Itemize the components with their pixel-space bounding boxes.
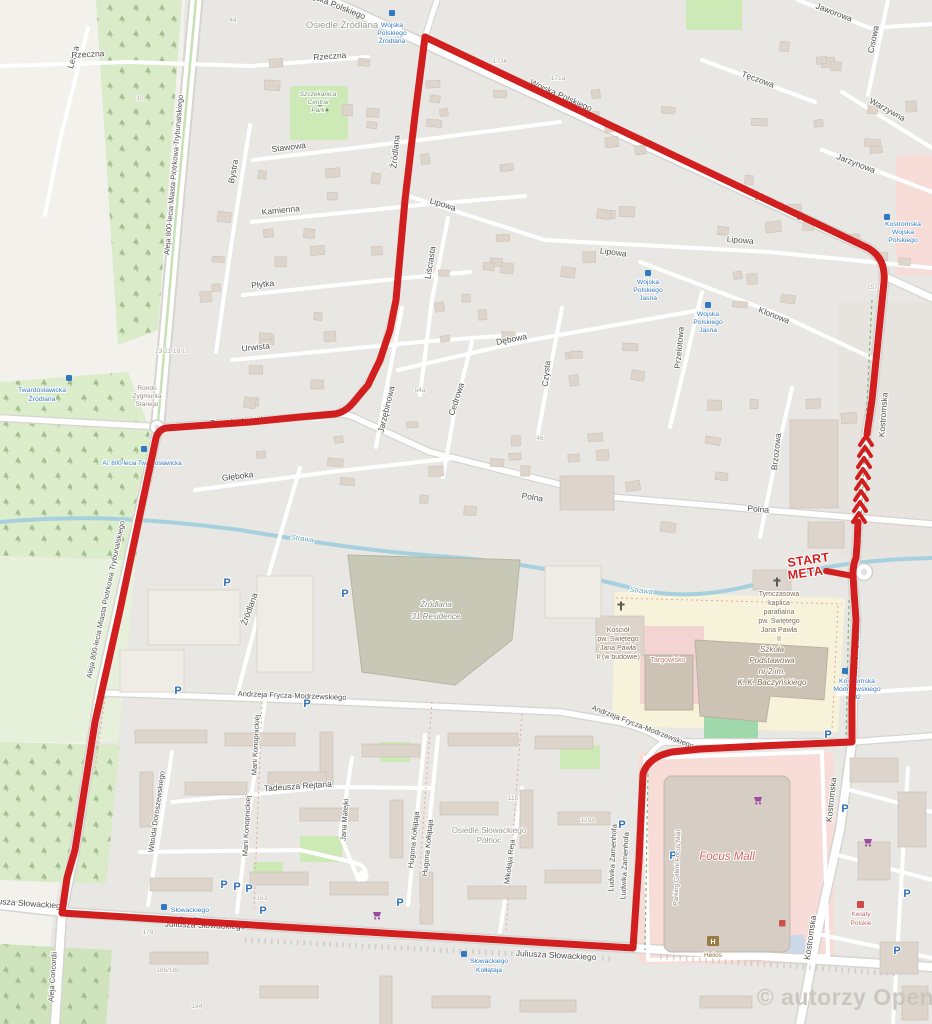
osm-map: H PP PP PP PP PP PP PP P Letnia Aleja 80… [0, 0, 932, 1024]
svg-text:Jasna: Jasna [699, 327, 717, 334]
svg-text:II: II [777, 636, 781, 643]
svg-text:Starego: Starego [136, 401, 159, 408]
church-label: Kościół [607, 627, 630, 634]
house-number: 179 [143, 929, 154, 936]
svg-text:pw. Świętego: pw. Świętego [597, 634, 638, 643]
house-number: 10 [136, 95, 144, 102]
house-number: 23 21 19 17 [155, 348, 190, 355]
svg-text:II (w budowie): II (w budowie) [596, 654, 640, 661]
stop-wp-zrodlana: Wojska [381, 22, 403, 29]
house-number: 1736 [493, 58, 508, 65]
stop-twardoslawicka-zrodlana: Twardosławicka [18, 387, 66, 394]
residence-label: Źródlana [419, 600, 452, 609]
svg-text:K. K. Baczyńskiego: K. K. Baczyńskiego [738, 678, 807, 687]
park-label: Szczekanica [300, 91, 337, 98]
shop-icon [779, 920, 786, 927]
svg-text:pw. Świętego: pw. Świętego [758, 616, 799, 625]
house-number: 115 [508, 795, 519, 802]
bus-stop-icon [842, 668, 848, 674]
house-number: 44 [229, 17, 237, 24]
svg-text:Modrzewskiego: Modrzewskiego [833, 686, 880, 693]
svg-text:Polskiego: Polskiego [888, 237, 918, 244]
area-label-osiedle-slowackiego: Osiedle Słowackiego [452, 826, 527, 835]
svg-text:Źródlana: Źródlana [379, 36, 406, 45]
svg-text:P: P [396, 897, 403, 909]
bus-stop-icon [389, 10, 395, 16]
svg-text:Jana Pawła: Jana Pawła [600, 645, 636, 652]
attribution: © autorzy OpenStreetMap.org [757, 984, 932, 1010]
svg-text:Polskiego: Polskiego [377, 30, 407, 37]
svg-text:Polskiego: Polskiego [633, 287, 663, 294]
svg-text:Zygmunta: Zygmunta [133, 393, 162, 400]
focus-mall-building [664, 776, 790, 952]
svg-text:P: P [903, 888, 910, 900]
svg-text:P: P [259, 905, 266, 917]
svg-text:P: P [220, 879, 227, 891]
svg-text:parafialna: parafialna [764, 609, 795, 616]
stop-wp-jasna: Wojska [697, 311, 719, 318]
svg-text:Północ: Północ [477, 836, 501, 845]
bus-stop-icon [141, 446, 147, 452]
stop-slowackiego-kollataja: Słowackiego [470, 958, 508, 965]
svg-text:P: P [618, 819, 625, 831]
svg-text:P: P [233, 881, 240, 893]
house-number: 54a [415, 387, 426, 394]
house-number: 184 [192, 1003, 203, 1010]
svg-text:Central: Central [308, 99, 330, 106]
svg-text:kaplica: kaplica [768, 600, 790, 607]
svg-text:Wojska: Wojska [892, 229, 914, 236]
svg-text:Park: Park [311, 107, 325, 114]
house-number: 129A [580, 817, 596, 824]
svg-text:P: P [174, 685, 181, 697]
house-number: 163 [257, 895, 268, 902]
svg-text:Jasna: Jasna [639, 295, 657, 302]
svg-text:H: H [710, 939, 715, 946]
florist-icon [857, 901, 864, 908]
svg-text:P: P [893, 945, 900, 957]
svg-text:Polskie: Polskie [851, 920, 872, 927]
street-label-lipowa: Lipowa [726, 234, 754, 246]
street-label-rzeczna: Rzeczna [71, 48, 105, 60]
svg-text:nr 2 im.: nr 2 im. [759, 667, 786, 676]
house-number: 46 [536, 435, 544, 442]
school-label: Szkoła [760, 645, 785, 654]
svg-text:P: P [841, 803, 848, 815]
playground-icon [326, 109, 329, 112]
bus-stop-icon [161, 904, 167, 910]
stop-slowackiego-osiedle: Słowackiego [171, 907, 209, 914]
svg-text:P: P [245, 883, 252, 895]
area-label-osiedle-zrodlana: Osiedle Źródlana [306, 20, 379, 31]
stop-wp-jasna: Wojska [637, 279, 659, 286]
cul-de-sac [358, 871, 369, 882]
svg-text:P: P [824, 729, 831, 741]
house-number: 171a [551, 75, 566, 82]
stop-kostromska-wp: Kostromska [885, 221, 921, 228]
bus-stop-icon [645, 270, 651, 276]
rondo-label: Rondo [137, 385, 157, 392]
svg-text:P: P [341, 588, 348, 600]
chapel-label: Tymczasowa [759, 591, 800, 598]
house-number: 186/188 [156, 967, 180, 974]
svg-text:Kołłątaja: Kołłątaja [476, 967, 502, 974]
stop-kostromska-modrzewskiego: Kostromska [839, 678, 875, 685]
map-canvas[interactable]: H PP PP PP PP PP PP PP P Letnia Aleja 80… [0, 0, 932, 1024]
market-label: Targowisko [650, 657, 685, 664]
svg-text:P: P [223, 577, 230, 589]
kwiaty-label: Kwiaty [851, 911, 871, 918]
svg-text:31 Residence: 31 Residence [412, 612, 461, 621]
bus-stop-icon [705, 302, 711, 308]
helios-label: Helios [704, 952, 723, 959]
svg-text:Polskiego: Polskiego [693, 319, 723, 326]
stop-al800-twardoslawicka: Al. 800-lecia Twardosławicka [102, 460, 182, 467]
bus-stop-icon [66, 375, 72, 381]
svg-text:Źródlana: Źródlana [29, 394, 56, 403]
svg-text:Jana Pawła: Jana Pawła [761, 627, 797, 634]
svg-text:Podstawowa: Podstawowa [749, 656, 795, 665]
focus-mall-label: Focus Mall [699, 851, 755, 863]
bus-stop-icon [461, 951, 467, 957]
street-label-polna: Polna [747, 503, 770, 515]
bus-stop-icon [884, 214, 890, 220]
